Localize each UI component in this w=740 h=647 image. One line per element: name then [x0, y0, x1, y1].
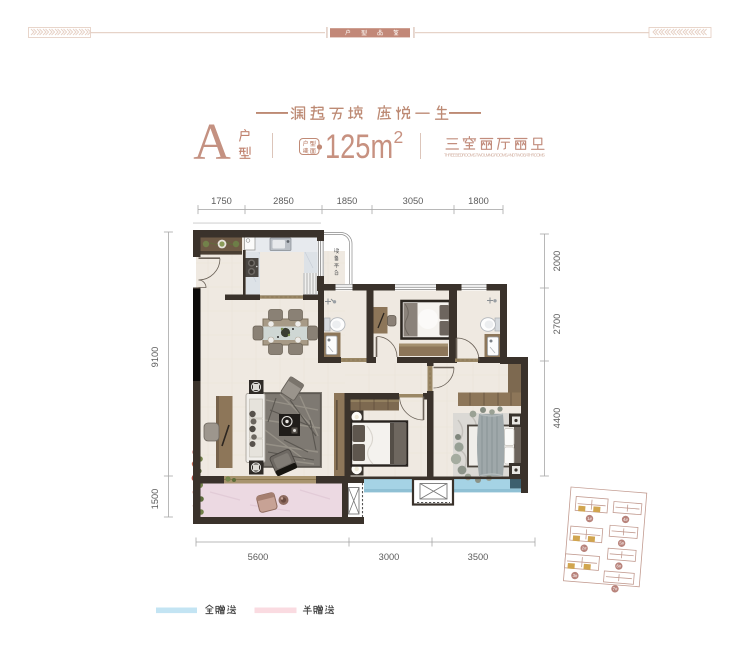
svg-text:1750: 1750 — [211, 196, 232, 206]
svg-text:2850: 2850 — [273, 196, 294, 206]
svg-text:2: 2 — [394, 127, 404, 147]
svg-text:2700: 2700 — [552, 314, 562, 335]
svg-text:3050: 3050 — [403, 196, 424, 206]
svg-text:A: A — [193, 114, 231, 171]
svg-text:1500: 1500 — [150, 489, 160, 510]
svg-text:THREE BEDROOMS. TWO LIVING ROO: THREE BEDROOMS. TWO LIVING ROOMS. AND TW… — [444, 153, 545, 158]
svg-text:5600: 5600 — [248, 552, 269, 562]
svg-text:1850: 1850 — [337, 196, 358, 206]
svg-text:3500: 3500 — [468, 552, 489, 562]
svg-text:2000: 2000 — [552, 251, 562, 272]
svg-text:4400: 4400 — [552, 408, 562, 429]
svg-text:3000: 3000 — [379, 552, 400, 562]
svg-text:125m: 125m — [325, 127, 393, 166]
svg-text:9100: 9100 — [150, 347, 160, 368]
svg-text:1800: 1800 — [468, 196, 489, 206]
